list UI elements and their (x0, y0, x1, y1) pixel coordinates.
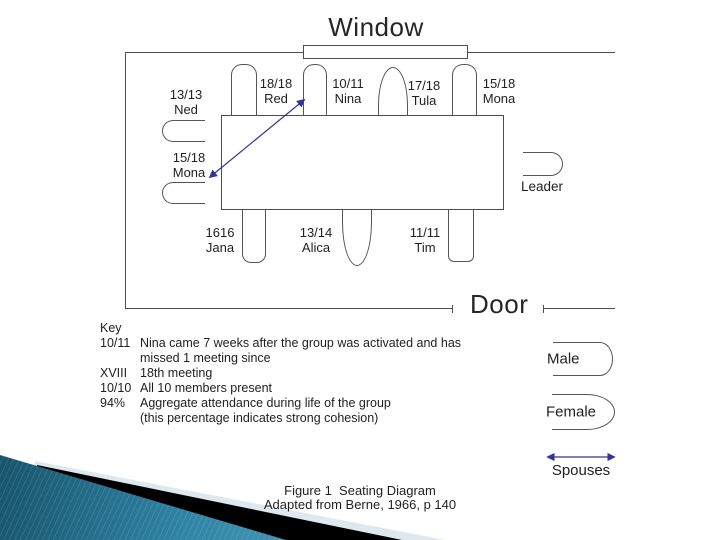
key-desc-line: 18th meeting (140, 366, 212, 381)
wall-left (125, 52, 126, 308)
seat-name: Tim (393, 241, 457, 256)
seat-name: Nina (316, 92, 380, 107)
seat-ratio: 11/11 (393, 226, 457, 241)
seat-label-alica: 13/14 Alica (284, 226, 348, 255)
window-rect (303, 45, 468, 59)
key-title: Key (100, 321, 520, 336)
caption-line-2: Adapted from Berne, 1966, p 140 (190, 498, 530, 512)
key-row: 10/11 Nina came 7 weeks after the group … (100, 336, 520, 366)
key-term: 10/11 (100, 336, 140, 366)
key-term: 10/10 (100, 381, 140, 396)
seat-label-tim: 11/11 Tim (393, 226, 457, 255)
meeting-table (221, 115, 504, 210)
key-desc-line: All 10 members present (140, 381, 272, 396)
seat-label-ned: 13/13 Ned (154, 88, 218, 117)
seat-label-tula: 17/18 Tula (392, 79, 456, 108)
slide-canvas: Window Door 18/18 Red 10/11 Nina 17/18 T… (0, 0, 720, 540)
key-term: XVIII (100, 366, 140, 381)
window-label: Window (296, 14, 456, 40)
seat-label-leader: Leader (510, 180, 574, 195)
wall-top-right (465, 52, 615, 53)
seat-ratio: 18/18 (244, 77, 308, 92)
seat-name: Jana (188, 241, 252, 256)
seat-name: Tula (392, 94, 456, 109)
door-tick-right (543, 305, 544, 313)
seat-label-mona-left: 15/18 Mona (157, 151, 221, 180)
figure-caption: Figure 1 Seating Diagram Adapted from Be… (190, 484, 530, 511)
key-row: XVIII 18th meeting (100, 366, 520, 381)
chair-leader (523, 152, 563, 176)
seat-label-mona-top: 15/18 Mona (467, 77, 531, 106)
seat-ratio: 13/14 (284, 226, 348, 241)
wall-bottom-left (125, 308, 452, 309)
key-desc-line: Nina came 7 weeks after the group was ac… (140, 336, 461, 351)
caption-line-1: Figure 1 Seating Diagram (190, 484, 530, 498)
key-row: 10/10 All 10 members present (100, 381, 520, 396)
wall-bottom-right (543, 308, 615, 309)
key-row: 94% Aggregate attendance during life of … (100, 396, 520, 426)
seat-label-red: 18/18 Red (244, 77, 308, 106)
male-symbol: Male (553, 342, 613, 376)
male-label: Male (547, 351, 580, 368)
seat-name: Red (244, 92, 308, 107)
seat-ratio: 10/11 (316, 77, 380, 92)
door-label: Door (470, 291, 528, 317)
chair-ned (162, 120, 205, 142)
female-label: Female (546, 404, 596, 421)
key-block: Key 10/11 Nina came 7 weeks after the gr… (100, 321, 520, 426)
spouses-label: Spouses (541, 462, 621, 479)
seat-label-nina: 10/11 Nina (316, 77, 380, 106)
seat-ratio: 15/18 (467, 77, 531, 92)
seat-name: Mona (467, 92, 531, 107)
seat-name: Ned (154, 103, 218, 118)
door-tick-left (452, 305, 453, 313)
female-symbol: Female (552, 394, 615, 430)
key-term: 94% (100, 396, 140, 426)
seat-ratio: 13/13 (154, 88, 218, 103)
seat-label-jana: 1616 Jana (188, 226, 252, 255)
seat-name: Alica (284, 241, 348, 256)
key-desc-line: missed 1 meeting since (140, 351, 461, 366)
key-desc-line: (this percentage indicates strong cohesi… (140, 411, 391, 426)
chair-mona-left (162, 182, 205, 204)
seat-ratio: 1616 (188, 226, 252, 241)
seat-ratio: 17/18 (392, 79, 456, 94)
seat-ratio: 15/18 (157, 151, 221, 166)
key-desc-line: Aggregate attendance during life of the … (140, 396, 391, 411)
seat-name: Leader (510, 180, 574, 195)
seat-name: Mona (157, 166, 221, 181)
